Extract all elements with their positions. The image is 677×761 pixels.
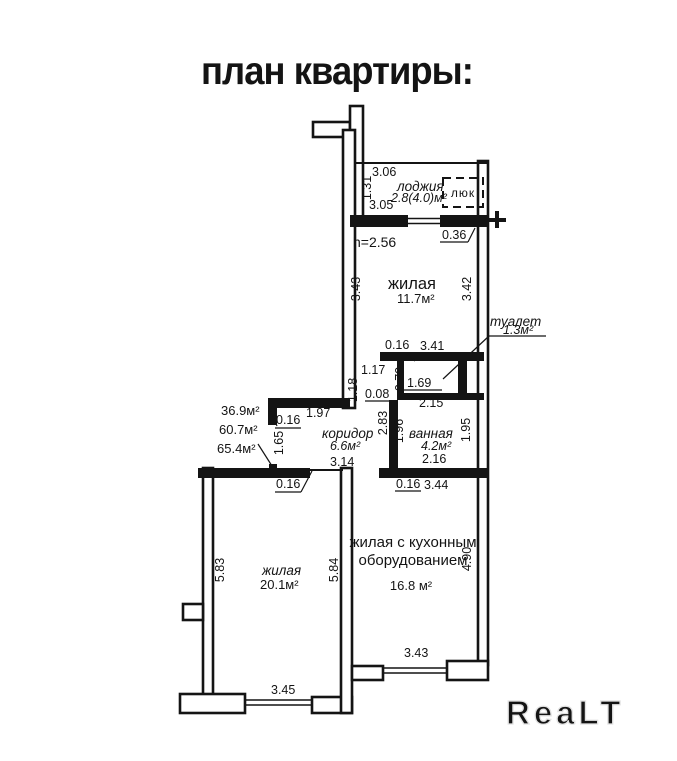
wall-room1-top-notch [269,464,277,469]
page-title: план квартиры: [201,50,473,93]
dim-room2-bottom: 3.43 [404,646,428,660]
loggia-area: 2.8(4.0)м² [390,191,448,205]
living-left-label: жилая [261,563,301,578]
wall-room2-bottom-right-block [447,661,488,680]
wall-room2-bottom-step [352,666,383,680]
dim-wall-t1: 0.16 [385,338,409,352]
wall-left-upper [343,130,355,408]
hatch-label: люк [451,186,475,200]
area-summary: 36.9м² 60.7м² 65.4м² [217,403,260,456]
dim-bath-wall: 3.44 [424,478,448,492]
living-kitchen-area: 16.8 м² [390,578,433,593]
wall-loggia-bottom-right [440,215,487,227]
dim-toilet-wall: 3.41 [420,339,444,353]
summary-living: 36.9м² [221,403,260,418]
wall-room1-bottom-left-block [180,694,245,713]
dim-wall-t2: 0.16 [396,477,420,491]
corridor-area: 6.6м² [330,439,361,453]
summary-full: 65.4м² [217,441,256,456]
dim-living-top-right: 3.42 [460,277,474,301]
dim-toilet-width: 1.69 [407,376,431,390]
dim-bath-bottom: 2.16 [422,452,446,466]
dim-bath-top: 2.15 [419,396,443,410]
balcony-door-leader [468,228,475,242]
floor-plan-drawing: план квартиры: [0,0,677,761]
dim-living-top-left: 3.43 [349,277,363,301]
dim-toilet-depth: 0.79 [393,367,407,391]
toilet-area: 1.3м² [503,323,534,337]
wall-right-exterior [478,161,488,665]
dim-bath-left: 1.96 [392,419,406,443]
wall-rooms-divider [341,468,352,713]
bathroom-area: 4.2м² [421,439,452,453]
wall-loggia-bottom-left [350,215,408,227]
floor-plan-page: план квартиры: [0,0,677,761]
summary-leader [258,444,272,466]
dim-room1-right: 5.84 [327,558,341,582]
dim-bath-right: 1.95 [459,418,473,442]
wall-pilaster [183,604,203,620]
dim-hall-wall: 1.97 [306,406,330,420]
dim-room2-right: 4.90 [460,547,474,571]
dim-passage: 1.17 [361,363,385,377]
dim-loggia-side: 1.31 [360,176,374,200]
dim-hall-side: 1.65 [272,431,286,455]
ceiling-height: h=2.56 [353,234,396,250]
dim-balcony-door: 0.36 [442,228,466,242]
summary-total: 60.7м² [219,422,258,437]
dim-step: 0.08 [365,387,389,401]
watermark-logo: ReaLT [506,694,624,731]
living-kitchen-label-2: оборудованием [358,552,467,569]
dim-corridor-len: 3.14 [330,455,354,469]
dim-loggia-bottom: 3.05 [369,198,393,212]
dim-wall-t3: 0.16 [276,413,300,427]
wall-toilet-right [458,361,467,393]
dim-wall-t4: 0.16 [276,477,300,491]
living-kitchen-label-1: жилая с кухонным [349,534,476,551]
dim-passage-side: 1.18 [346,378,360,402]
dim-room1-bottom: 3.45 [271,683,295,697]
dim-corridor-arm: 2.83 [376,411,390,435]
dim-loggia-top: 3.06 [372,165,396,179]
wall-right-tick-v [495,211,499,228]
living-top-area: 11.7м² [397,291,435,306]
living-left-area: 20.1м² [260,577,299,592]
dim-room1-left: 5.83 [213,558,227,582]
wall-room1-left [203,468,213,698]
